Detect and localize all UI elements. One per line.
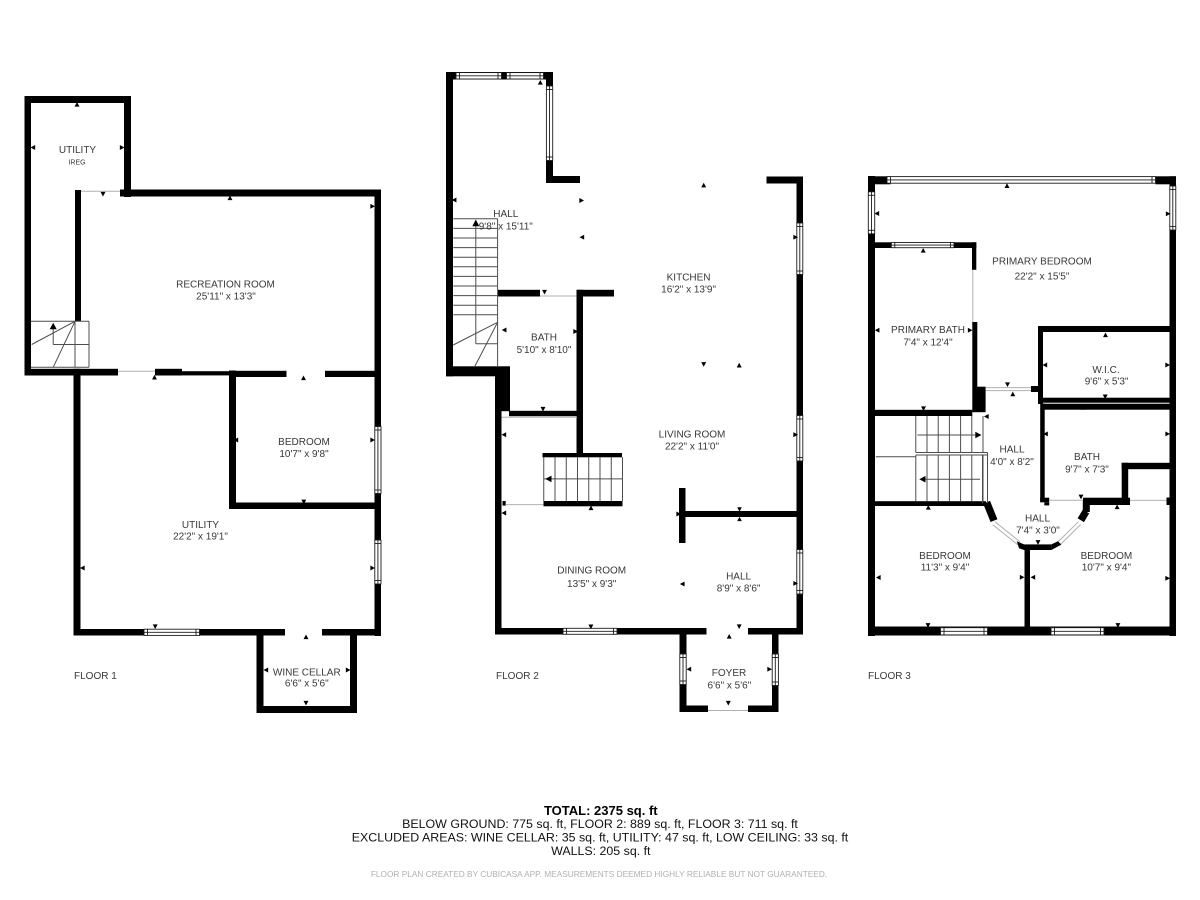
svg-text:HALL: HALL bbox=[1025, 514, 1050, 525]
svg-text:FLOOR PLAN CREATED BY CUBICASA: FLOOR PLAN CREATED BY CUBICASA APP. MEAS… bbox=[371, 869, 827, 879]
svg-text:RECREATION ROOM: RECREATION ROOM bbox=[176, 280, 275, 291]
svg-text:BEDROOM: BEDROOM bbox=[1081, 551, 1133, 562]
svg-text:BEDROOM: BEDROOM bbox=[919, 551, 971, 562]
svg-text:6'6" x 5'6": 6'6" x 5'6" bbox=[708, 681, 752, 692]
svg-text:UTILITY: UTILITY bbox=[59, 145, 97, 156]
svg-text:BELOW GROUND: 775 sq. ft, FLOO: BELOW GROUND: 775 sq. ft, FLOOR 2: 889 s… bbox=[402, 817, 798, 831]
svg-text:IREG: IREG bbox=[68, 159, 85, 166]
svg-text:PRIMARY BATH: PRIMARY BATH bbox=[891, 325, 965, 336]
svg-text:BATH: BATH bbox=[1074, 452, 1100, 463]
svg-text:LIVING ROOM: LIVING ROOM bbox=[659, 430, 726, 441]
svg-text:7'4" x 12'4": 7'4" x 12'4" bbox=[903, 338, 953, 349]
svg-text:22'2" x 15'5": 22'2" x 15'5" bbox=[1015, 272, 1070, 283]
svg-text:FLOOR 3: FLOOR 3 bbox=[868, 671, 911, 682]
svg-text:W.I.C.: W.I.C. bbox=[1092, 365, 1119, 376]
svg-text:BEDROOM: BEDROOM bbox=[278, 437, 330, 448]
svg-text:FLOOR 1: FLOOR 1 bbox=[74, 671, 117, 682]
svg-text:22'2" x 19'1": 22'2" x 19'1" bbox=[173, 532, 228, 543]
svg-text:FLOOR 2: FLOOR 2 bbox=[496, 671, 539, 682]
svg-text:13'5" x 9'3": 13'5" x 9'3" bbox=[567, 579, 617, 590]
svg-text:11'3" x 9'4": 11'3" x 9'4" bbox=[921, 562, 970, 573]
svg-text:6'6" x 5'6": 6'6" x 5'6" bbox=[285, 679, 329, 690]
svg-text:HALL: HALL bbox=[726, 572, 751, 583]
svg-text:16'2" x 13'9": 16'2" x 13'9" bbox=[661, 285, 716, 296]
svg-text:HALL: HALL bbox=[493, 209, 518, 220]
svg-text:5'10" x 8'10": 5'10" x 8'10" bbox=[517, 345, 572, 356]
svg-text:BATH: BATH bbox=[531, 333, 557, 344]
svg-text:8'9" x 8'6": 8'9" x 8'6" bbox=[717, 584, 761, 595]
svg-text:7'4" x 3'0": 7'4" x 3'0" bbox=[1016, 526, 1060, 537]
svg-text:25'11" x 13'3": 25'11" x 13'3" bbox=[196, 292, 256, 303]
svg-text:UTILITY: UTILITY bbox=[182, 520, 220, 531]
svg-text:TOTAL: 2375 sq. ft: TOTAL: 2375 sq. ft bbox=[544, 803, 658, 818]
svg-text:10'7" x 9'8": 10'7" x 9'8" bbox=[279, 449, 329, 460]
svg-text:9'8" x 15'11": 9'8" x 15'11" bbox=[479, 222, 534, 233]
svg-text:EXCLUDED AREAS: WINE CELLAR: 3: EXCLUDED AREAS: WINE CELLAR: 35 sq. ft, … bbox=[352, 831, 849, 845]
svg-text:PRIMARY BEDROOM: PRIMARY BEDROOM bbox=[992, 257, 1092, 268]
svg-text:WALLS: 205 sq. ft: WALLS: 205 sq. ft bbox=[551, 844, 651, 858]
svg-text:HALL: HALL bbox=[999, 445, 1024, 456]
svg-text:9'7" x 7'3": 9'7" x 7'3" bbox=[1065, 465, 1109, 476]
svg-text:WINE CELLAR: WINE CELLAR bbox=[273, 668, 341, 679]
svg-text:FOYER: FOYER bbox=[712, 668, 746, 679]
svg-text:9'6" x 5'3": 9'6" x 5'3" bbox=[1085, 377, 1129, 388]
svg-text:22'2" x 11'0": 22'2" x 11'0" bbox=[665, 442, 720, 453]
svg-text:10'7" x 9'4": 10'7" x 9'4" bbox=[1082, 562, 1132, 573]
svg-text:4'0" x 8'2": 4'0" x 8'2" bbox=[990, 457, 1034, 468]
svg-text:DINING ROOM: DINING ROOM bbox=[557, 566, 626, 577]
svg-text:KITCHEN: KITCHEN bbox=[667, 273, 711, 284]
